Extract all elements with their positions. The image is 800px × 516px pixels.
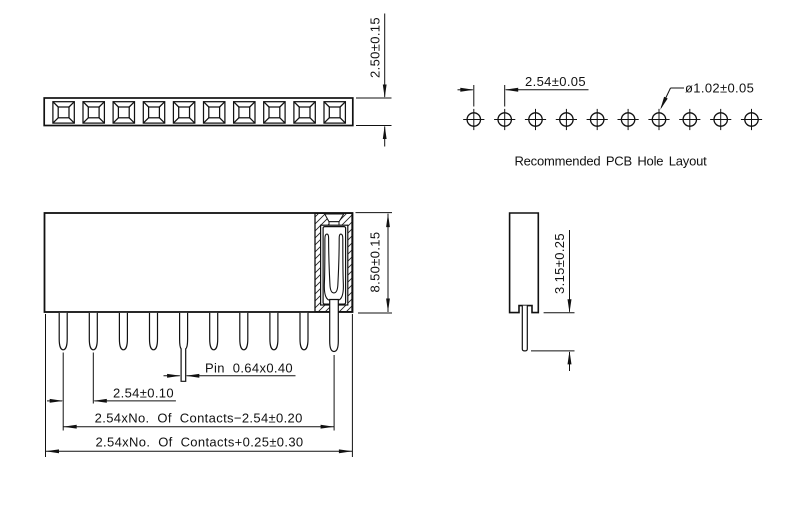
svg-text:8.50±0.15: 8.50±0.15 bbox=[368, 232, 383, 293]
svg-text:2.54xNo. Of Contacts−2.54±0.: 2.54xNo. Of Contacts−2.54±0.20 bbox=[95, 410, 303, 425]
svg-text:2.54xNo. Of Contacts+0.25±0.: 2.54xNo. Of Contacts+0.25±0.30 bbox=[95, 435, 303, 450]
svg-text:2.54±0.10: 2.54±0.10 bbox=[113, 385, 174, 400]
svg-text:Pin 0.64x0.40: Pin 0.64x0.40 bbox=[205, 360, 293, 375]
svg-text:2.54±0.05: 2.54±0.05 bbox=[525, 74, 586, 89]
svg-text:3.15±0.25: 3.15±0.25 bbox=[552, 233, 567, 294]
svg-text:ø1.02±0.05: ø1.02±0.05 bbox=[685, 81, 754, 96]
svg-text:Recommended PCB Hole Layout: Recommended PCB Hole Layout bbox=[514, 154, 707, 169]
svg-text:2.50±0.15: 2.50±0.15 bbox=[368, 17, 383, 78]
